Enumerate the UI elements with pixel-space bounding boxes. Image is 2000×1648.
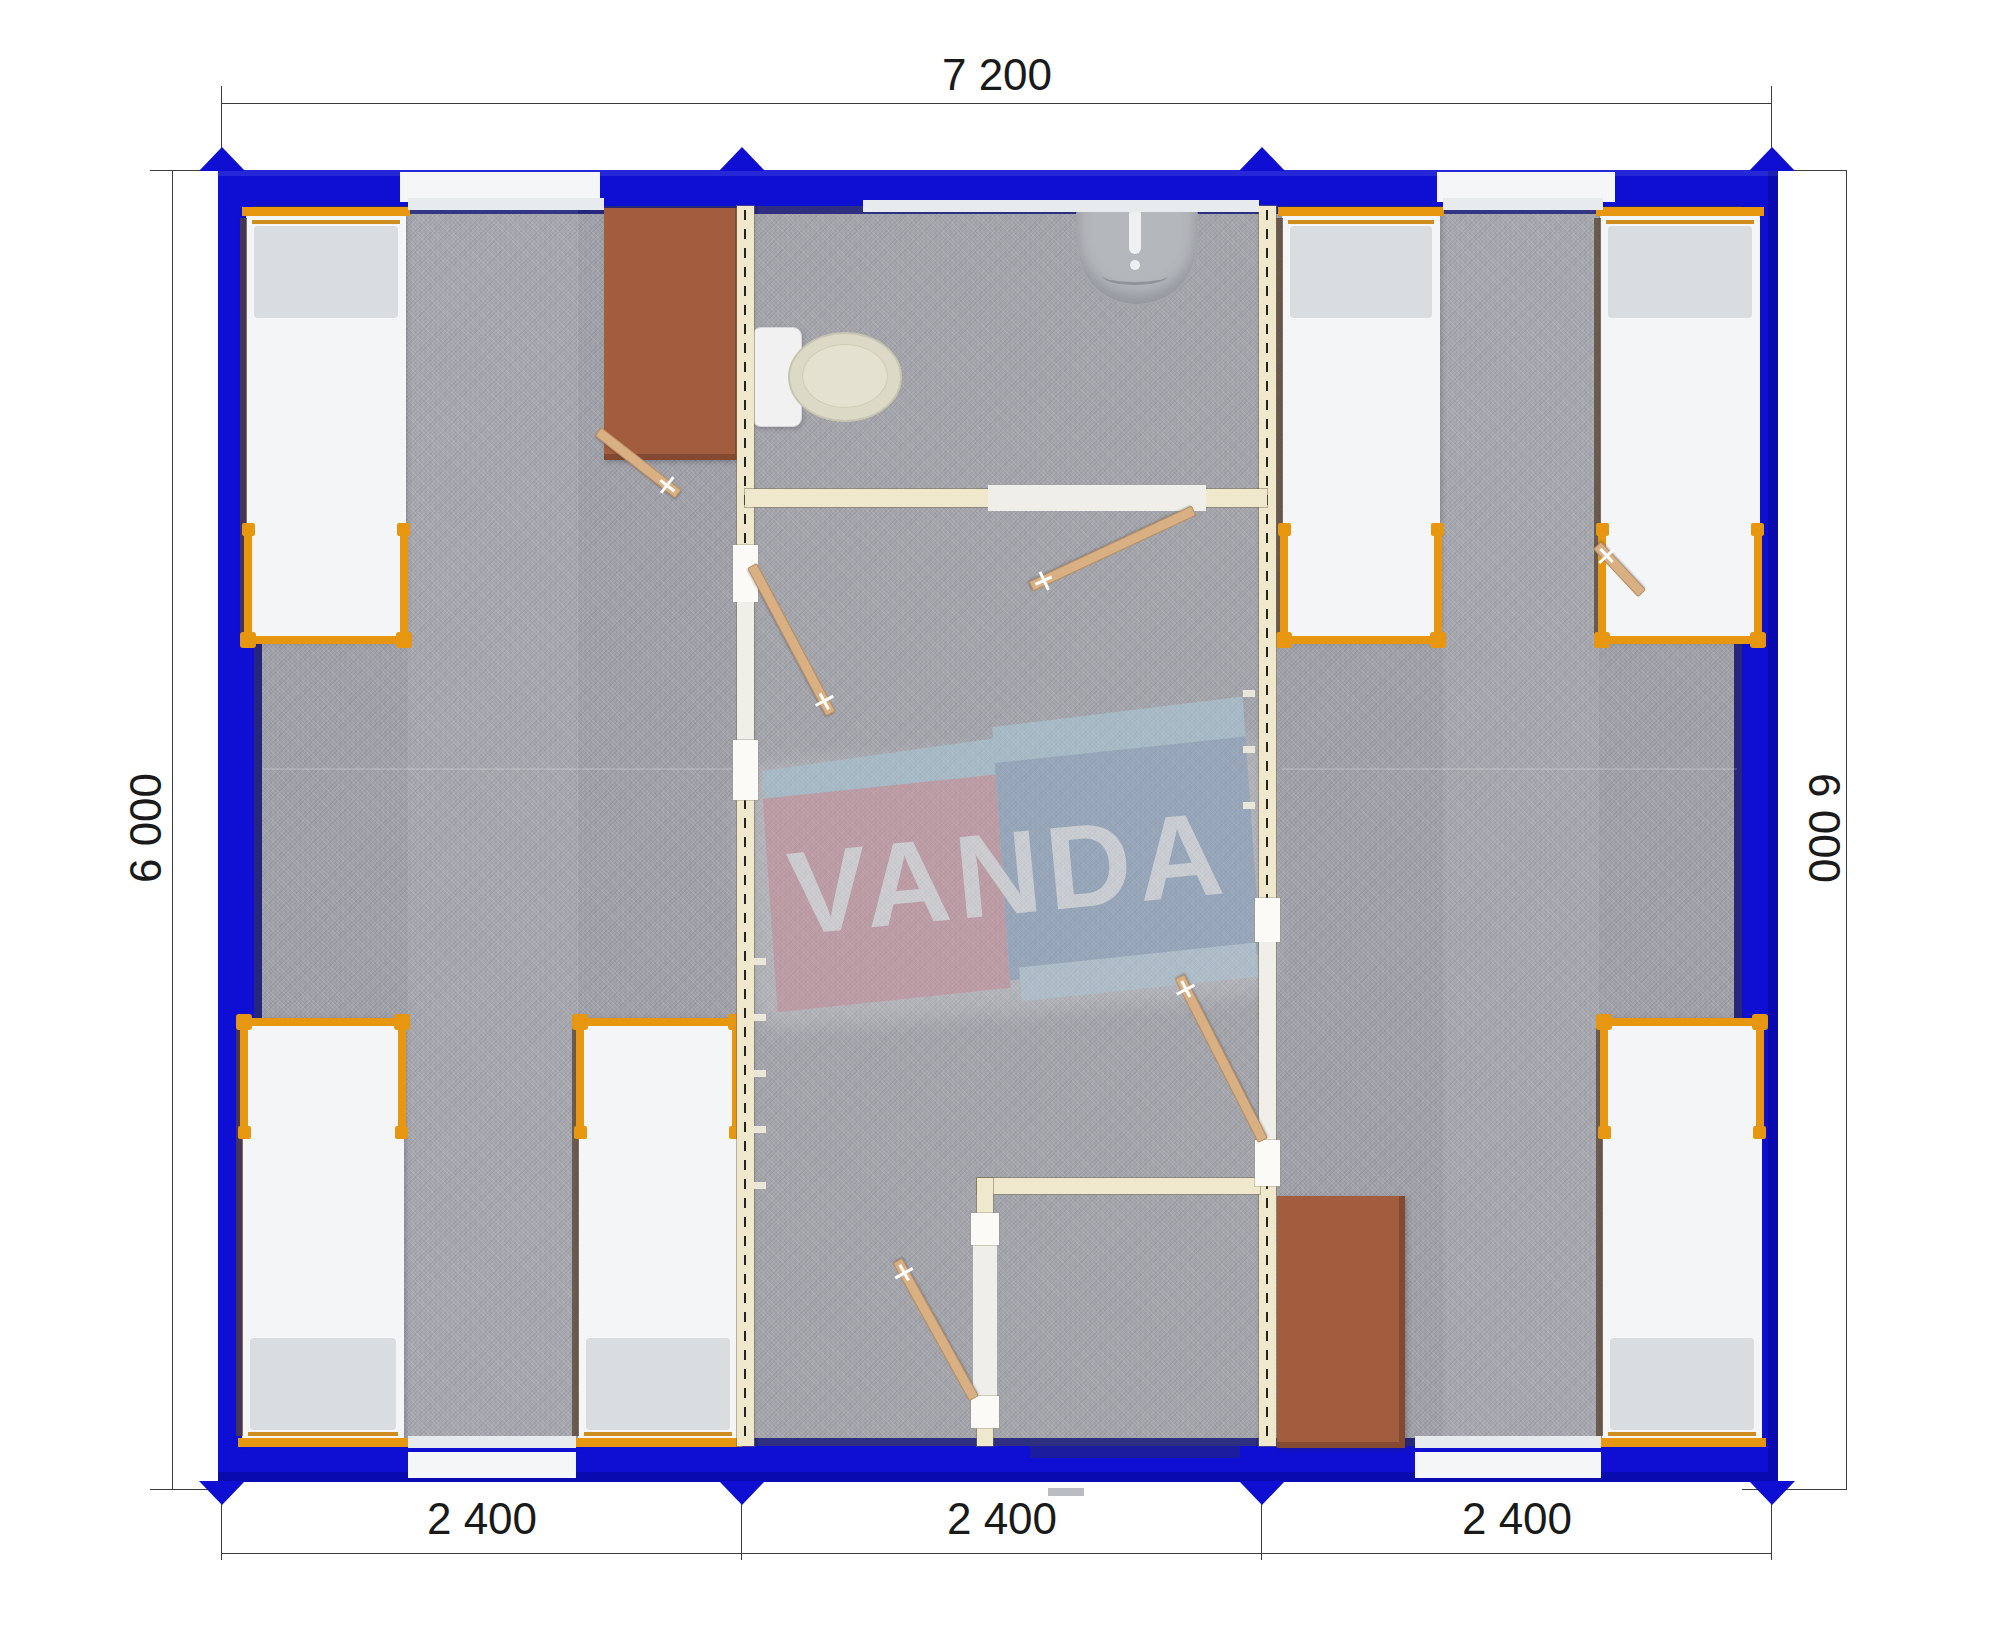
bed-frame-head — [1596, 207, 1764, 216]
door-handle — [1598, 548, 1615, 564]
carpet-seam — [1282, 768, 1737, 770]
bed-frame-head — [1278, 207, 1444, 216]
bed-frame-head — [574, 1438, 742, 1447]
door-jamb — [971, 1396, 999, 1428]
pillow — [586, 1338, 730, 1430]
dimension-left-height: 6 000 — [123, 746, 169, 910]
pillow — [1290, 226, 1432, 318]
door-jamb — [971, 1213, 999, 1245]
partition-wall-left — [737, 206, 754, 1446]
bed-frame-rail — [244, 530, 252, 642]
bed-frame-foot — [1279, 636, 1443, 644]
bed-frame-post — [242, 523, 255, 536]
bed-frame-post — [572, 1014, 588, 1030]
bed-frame-rail — [1280, 530, 1288, 642]
bed-frame-foot — [1597, 636, 1763, 644]
bed-frame-post — [395, 1126, 408, 1139]
window-sill — [863, 200, 1259, 212]
bed — [242, 1020, 404, 1444]
bed — [246, 210, 406, 642]
window-sill — [408, 1436, 576, 1448]
bed-frame-post — [1753, 1126, 1766, 1139]
door-jamb — [1255, 1140, 1280, 1186]
bed-frame-rail — [1754, 530, 1762, 642]
wall-dash-line — [744, 210, 746, 1442]
window-sill — [1415, 1436, 1601, 1448]
wall-stud-mark — [754, 958, 766, 965]
bed-frame-rail — [1600, 1020, 1608, 1132]
dimension-right-height: 6 000 — [1801, 746, 1847, 910]
bed-frame-post — [1596, 523, 1609, 536]
vestibule-wall-horizontal — [977, 1178, 1260, 1194]
dimension-top-width: 7 200 — [897, 52, 1097, 98]
dimension-module-1: 2 400 — [382, 1496, 582, 1542]
bed-frame-post — [397, 523, 410, 536]
bed-frame-rail — [1756, 1020, 1764, 1132]
bed-frame-post — [238, 1126, 251, 1139]
window — [408, 1452, 576, 1478]
wall-stud-mark — [1243, 746, 1255, 753]
entry-threshold — [1048, 1488, 1084, 1496]
door-handle — [895, 1267, 914, 1279]
wall-stud-mark — [754, 1126, 766, 1133]
bed-frame-rail — [400, 530, 408, 642]
wall-stud-mark — [754, 1070, 766, 1077]
bed-frame-post — [1751, 523, 1764, 536]
dimension-module-2: 2 400 — [902, 1496, 1102, 1542]
bed-frame-post — [1430, 632, 1446, 648]
pillow — [1610, 1338, 1754, 1430]
bed-frame-rail — [398, 1020, 406, 1132]
brand-watermark: VANDA — [745, 685, 1265, 1019]
table — [1277, 1196, 1405, 1448]
floor-highlight — [408, 206, 578, 1446]
bed-frame-post — [236, 1014, 252, 1030]
bed-frame-rail — [576, 1020, 584, 1132]
pillow — [250, 1338, 396, 1430]
window-sill — [408, 198, 604, 210]
toilet-seat — [802, 344, 888, 408]
floor-plan-canvas: 7 200 6 000 6 000 2 400 2 400 2 400 VAND… — [0, 0, 2000, 1648]
bed-frame-head — [242, 207, 410, 216]
bed-frame-post — [1750, 632, 1766, 648]
sink-basin-edge — [1102, 266, 1168, 285]
dimension-line-top — [222, 103, 1772, 104]
sink-faucet — [1129, 208, 1141, 254]
bed-frame-head — [238, 1438, 408, 1447]
bed-frame-line — [252, 220, 400, 224]
bed-frame-post — [394, 1014, 410, 1030]
wall-stud-mark — [754, 1182, 766, 1189]
window — [1415, 1452, 1601, 1478]
bed-frame-rail — [240, 1020, 248, 1132]
bed — [1282, 210, 1440, 642]
door-handle — [660, 476, 675, 494]
bed-frame-head — [1598, 1438, 1766, 1447]
dimension-line-left — [172, 170, 173, 1490]
pillow — [254, 226, 398, 318]
bed-frame-line — [1606, 220, 1754, 224]
carpet-seam — [262, 768, 732, 770]
bed-frame-line — [1288, 220, 1434, 224]
bed-frame-post — [1278, 523, 1291, 536]
bed — [1602, 1020, 1762, 1444]
wall-connector-lug — [199, 147, 245, 171]
wall-connector-lug — [199, 1481, 245, 1505]
window-sill — [1443, 198, 1603, 210]
wall-connector-lug — [1749, 147, 1795, 171]
dimension-line-bottom — [222, 1553, 1772, 1554]
bed-frame-post — [574, 1126, 587, 1139]
bathroom-door-opening — [988, 485, 1206, 511]
bed-frame-post — [1276, 632, 1292, 648]
pillow — [1608, 226, 1752, 318]
wall-stud-mark — [754, 1014, 766, 1021]
bed-frame-post — [396, 632, 412, 648]
door-jamb — [1255, 898, 1280, 942]
bed — [578, 1020, 738, 1444]
bed-frame-foot — [243, 636, 409, 644]
bed-frame-foot — [575, 1018, 741, 1026]
bed-frame-line — [248, 1432, 398, 1436]
bed-frame-post — [1598, 1126, 1611, 1139]
wall-connector-lug — [719, 147, 765, 171]
wall-connector-lug — [1239, 147, 1285, 171]
table — [604, 208, 741, 460]
wall-stud-mark — [1243, 802, 1255, 809]
wall-connector-lug — [719, 1481, 765, 1505]
partition-wall-right — [1259, 206, 1276, 1446]
wall-connector-lug — [1239, 1481, 1285, 1505]
door-opening — [1259, 942, 1276, 1140]
door-jamb — [733, 740, 758, 800]
bed-frame-line — [584, 1432, 732, 1436]
bed-frame-post — [240, 632, 256, 648]
entry-door-notch — [1030, 1446, 1240, 1458]
door-opening — [737, 602, 754, 740]
wall-stud-mark — [1243, 690, 1255, 697]
bed-frame-foot — [1599, 1018, 1765, 1026]
bed-frame-rail — [1434, 530, 1442, 642]
bed-frame-post — [1752, 1014, 1768, 1030]
wall-connector-lug — [1749, 1481, 1795, 1505]
bed-frame-post — [1596, 1014, 1612, 1030]
bed-frame-post — [1431, 523, 1444, 536]
wall-dash-line — [1266, 210, 1268, 1442]
floor-highlight — [1444, 206, 1599, 1446]
bed-frame-line — [1608, 1432, 1756, 1436]
bed-frame-post — [1594, 632, 1610, 648]
bed-frame-foot — [239, 1018, 407, 1026]
dimension-module-3: 2 400 — [1417, 1496, 1617, 1542]
